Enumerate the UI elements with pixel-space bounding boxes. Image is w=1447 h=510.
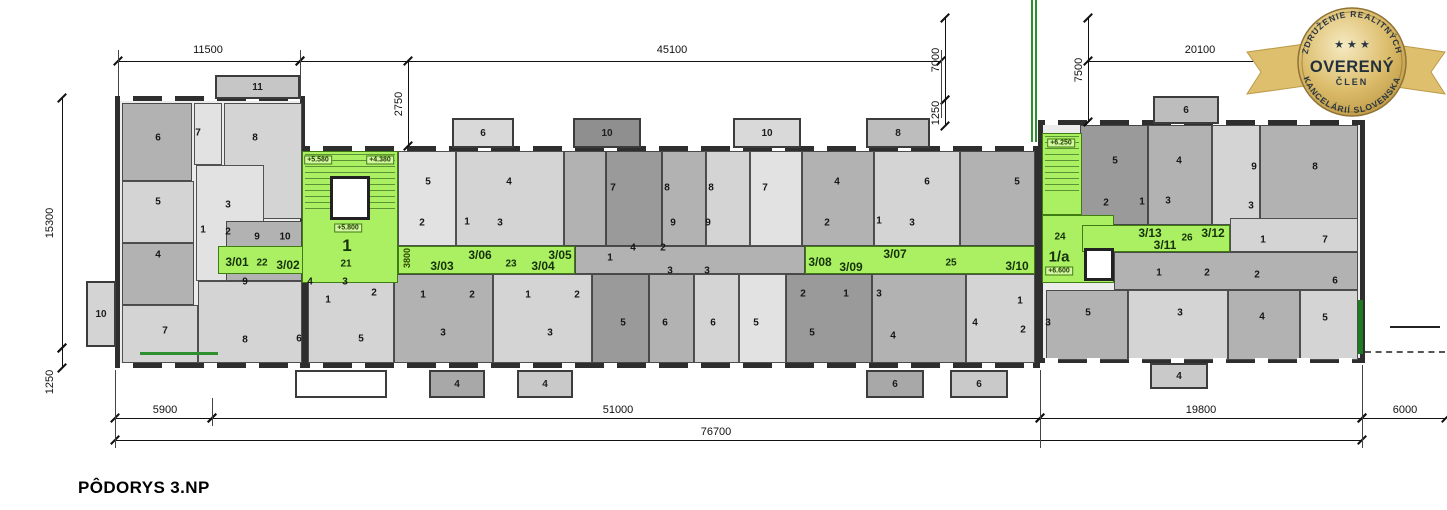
- dimension-line: [62, 98, 63, 348]
- room-label: 7: [1322, 235, 1328, 246]
- room-label: 2: [1103, 198, 1109, 209]
- balcony: 10: [733, 118, 801, 148]
- accent-line: [1035, 0, 1037, 142]
- room: [739, 274, 786, 363]
- room-label: 3: [1165, 196, 1171, 207]
- elevator: [1084, 248, 1114, 281]
- elevation-tag: +4.380: [366, 156, 394, 165]
- dimension-line: [1362, 418, 1446, 419]
- window-strip: [120, 363, 300, 368]
- room-label: 5: [1322, 313, 1328, 324]
- room-label: 2: [1254, 270, 1260, 281]
- accent-line: [1390, 326, 1440, 328]
- room-label: 3: [667, 266, 673, 277]
- extension-line: [212, 398, 213, 426]
- room-label: 1: [1139, 197, 1145, 208]
- room: [456, 151, 564, 246]
- room-label: 1: [325, 295, 331, 306]
- room-label: 2: [660, 243, 666, 254]
- room-label: 8: [664, 183, 670, 194]
- room-label: 1: [876, 216, 882, 227]
- unit-label: 3/07: [883, 247, 906, 261]
- room: [308, 274, 394, 363]
- window-strip: [310, 363, 1033, 368]
- accent-line: [1031, 0, 1033, 142]
- room: [198, 281, 302, 363]
- extension-line: [941, 50, 942, 118]
- corridor-width-label: 3800: [402, 248, 412, 268]
- extension-line: [300, 50, 301, 100]
- unit-label: 3/08: [808, 255, 831, 269]
- room-label: 4: [834, 177, 840, 188]
- extension-line: [1040, 370, 1041, 448]
- verified-badge: ZDRUŽENIE REALITNÝCH KANCELÁRIÍ SLOVENSK…: [1245, 0, 1447, 125]
- dimension-label: 19800: [1186, 404, 1217, 416]
- unit-label: 3/10: [1005, 259, 1028, 273]
- room-label: 3: [1045, 318, 1051, 329]
- unit-label: 3/06: [468, 248, 491, 262]
- room: [398, 151, 456, 246]
- room: [694, 274, 739, 363]
- extension-line: [1362, 365, 1363, 448]
- balcony: 11: [215, 75, 300, 99]
- dimension-label: 20100: [1185, 44, 1216, 56]
- room: [1128, 290, 1228, 360]
- room: [706, 151, 750, 246]
- floor-plan: 1161010861044664678531291047985421378879…: [0, 0, 1447, 510]
- room-label: 5: [753, 318, 759, 329]
- room-label: 8: [242, 335, 248, 346]
- room: [606, 151, 662, 246]
- dimension-line: [212, 418, 1040, 419]
- room: [1046, 290, 1128, 360]
- dimension-label: 15300: [44, 208, 56, 239]
- balcony: 6: [950, 370, 1008, 398]
- room-label: 3: [876, 289, 882, 300]
- room-label: 2: [1020, 325, 1026, 336]
- room-label: 5: [155, 197, 161, 208]
- room-label: 1: [200, 225, 206, 236]
- room: [1230, 218, 1358, 252]
- unit-label: 3/01: [225, 255, 248, 269]
- stars-icon: ★ ★ ★: [1334, 39, 1370, 51]
- room-label: 1: [843, 289, 849, 300]
- room-label: 4: [1176, 156, 1182, 167]
- balcony: 6: [866, 370, 924, 398]
- balcony: 4: [429, 370, 485, 398]
- dimension-label: 1250: [44, 370, 56, 394]
- room-label: 10: [279, 232, 290, 243]
- room-label: 8: [252, 133, 258, 144]
- room-label: 5: [1112, 156, 1118, 167]
- room-label: 6: [1332, 276, 1338, 287]
- room: [1260, 125, 1358, 225]
- room: [750, 151, 802, 246]
- accent-line: [1365, 351, 1445, 353]
- room-label: 3: [547, 328, 553, 339]
- accent-line: [1358, 300, 1363, 354]
- room-label: 9: [254, 232, 260, 243]
- room-label: 3: [909, 218, 915, 229]
- room: [493, 274, 592, 363]
- room-label: 1: [607, 253, 613, 264]
- room-label: 6: [662, 318, 668, 329]
- dimension-label: 76700: [701, 426, 732, 438]
- dimension-label: 6000: [1393, 404, 1417, 416]
- room-label: 1: [1156, 268, 1162, 279]
- room: [649, 274, 694, 363]
- room-label: 1: [1017, 296, 1023, 307]
- room: [564, 151, 606, 246]
- room-label: 3: [1248, 201, 1254, 212]
- room-label: 1: [420, 290, 426, 301]
- dimension-line: [118, 61, 300, 62]
- room: [394, 274, 493, 363]
- room-label: 7: [762, 183, 768, 194]
- balcony: 6: [452, 118, 514, 148]
- room-label: 9: [1251, 162, 1257, 173]
- room-label: 5: [620, 318, 626, 329]
- balcony: 4: [517, 370, 573, 398]
- room: [1228, 290, 1300, 360]
- room: [1148, 125, 1212, 225]
- room-label: 4: [155, 250, 161, 261]
- dimension-line: [1088, 18, 1089, 122]
- elevation-tag: +6.600: [1045, 267, 1073, 276]
- room-label: 6: [924, 177, 930, 188]
- room: [662, 151, 706, 246]
- unit-label: 23: [505, 259, 516, 270]
- room-label: 6: [155, 133, 161, 144]
- room: [874, 151, 960, 246]
- room: [802, 151, 874, 246]
- room-label: 3: [497, 218, 503, 229]
- dimension-label: 11500: [193, 44, 223, 56]
- dimension-line: [945, 18, 946, 100]
- unit-label: 3/12: [1201, 226, 1224, 240]
- room-label: 6: [296, 334, 302, 345]
- unit-label: 24: [1054, 232, 1065, 243]
- elevator: [330, 176, 370, 220]
- unit-label: 3/03: [430, 259, 453, 273]
- dimension-line: [115, 418, 212, 419]
- room-label: 2: [419, 218, 425, 229]
- unit-label: 25: [945, 258, 956, 269]
- room-label: 4: [307, 277, 313, 288]
- room-label: 2: [800, 289, 806, 300]
- room-label: 1: [525, 290, 531, 301]
- room: [1114, 252, 1358, 290]
- room-label: 1: [464, 217, 470, 228]
- room: [786, 274, 872, 363]
- dimension-line: [300, 61, 941, 62]
- room: [1300, 290, 1358, 360]
- dimension-label: 2750: [393, 92, 405, 116]
- room-label: 3: [225, 200, 231, 211]
- balcony: 10: [573, 118, 641, 148]
- unit-label: 3/11: [1154, 238, 1177, 252]
- badge-seal: ZDRUŽENIE REALITNÝCH KANCELÁRIÍ SLOVENSK…: [1298, 8, 1406, 116]
- elevation-tag: +5.580: [304, 156, 332, 165]
- room-label: 3: [342, 277, 348, 288]
- room-label: 2: [574, 290, 580, 301]
- unit-label: 1: [342, 236, 351, 256]
- room-label: 9: [670, 218, 676, 229]
- unit-label: 3/04: [531, 259, 554, 273]
- room-label: 4: [630, 243, 636, 254]
- dimension-label: 7500: [1073, 58, 1085, 82]
- balcony: 6: [1153, 96, 1219, 124]
- room-label: 4: [506, 177, 512, 188]
- room-label: 5: [809, 328, 815, 339]
- elevation-tag: +6.250: [1047, 139, 1075, 148]
- room-label: 5: [358, 334, 364, 345]
- unit-label: 3/09: [839, 260, 862, 274]
- room: [872, 274, 966, 363]
- balcony: 4: [1150, 363, 1208, 389]
- room-label: 4: [972, 318, 978, 329]
- unit-label: 26: [1181, 233, 1192, 244]
- room-label: 3: [1177, 308, 1183, 319]
- room-label: 2: [371, 288, 377, 299]
- room-label: 8: [1312, 162, 1318, 173]
- badge-sub-text: ČLEN: [1336, 76, 1369, 87]
- room-label: 8: [708, 183, 714, 194]
- room-label: 4: [890, 331, 896, 342]
- room-label: 1: [1260, 235, 1266, 246]
- accent-line: [140, 352, 218, 355]
- page-title: PÔDORYS 3.NP: [78, 478, 210, 498]
- room: [1080, 125, 1148, 225]
- room-label: 3: [704, 266, 710, 277]
- unit-label: 3/02: [276, 258, 299, 272]
- dimension-line: [1040, 418, 1362, 419]
- room-label: 4: [1259, 312, 1265, 323]
- room-label: 3: [440, 328, 446, 339]
- room: [122, 181, 194, 243]
- room-label: 5: [1085, 308, 1091, 319]
- unit-label: 21: [340, 259, 351, 270]
- balcony: 10: [86, 281, 116, 347]
- room-label: 5: [425, 177, 431, 188]
- extension-line: [115, 370, 116, 448]
- room-label: 2: [225, 227, 231, 238]
- room-label: 2: [824, 218, 830, 229]
- room-label: 2: [469, 290, 475, 301]
- badge-main-text: OVERENÝ: [1310, 57, 1394, 76]
- room: [960, 151, 1035, 246]
- balcony: 8: [866, 118, 930, 148]
- unit-label: 1/a: [1049, 249, 1070, 266]
- room-label: 7: [610, 183, 616, 194]
- room-label: 5: [1014, 177, 1020, 188]
- dimension-line: [115, 440, 1362, 441]
- extension-line: [118, 50, 119, 96]
- dimension-label: 5900: [153, 404, 177, 416]
- room-label: 9: [705, 218, 711, 229]
- balcony: [295, 370, 387, 398]
- room-label: 9: [242, 277, 248, 288]
- elevation-tag: +5.800: [334, 224, 362, 233]
- room-label: 2: [1204, 268, 1210, 279]
- room-label: 7: [162, 326, 168, 337]
- dimension-line: [408, 61, 409, 146]
- dimension-label: 45100: [657, 44, 688, 56]
- room-label: 7: [195, 128, 201, 139]
- unit-label: 22: [256, 258, 267, 269]
- room-label: 6: [710, 318, 716, 329]
- dimension-label: 51000: [603, 404, 634, 416]
